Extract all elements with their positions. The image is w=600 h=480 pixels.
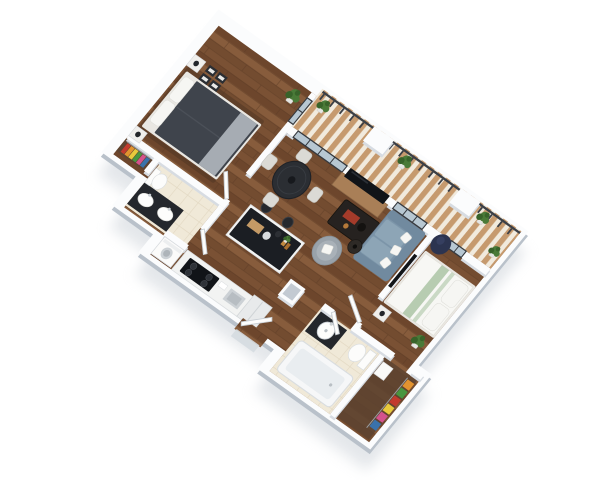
bedroom-1-door: [224, 171, 229, 199]
floor-plan-render: [0, 0, 600, 480]
floor-plan-scene: [0, 0, 600, 480]
apartment-unit: [35, 9, 551, 471]
